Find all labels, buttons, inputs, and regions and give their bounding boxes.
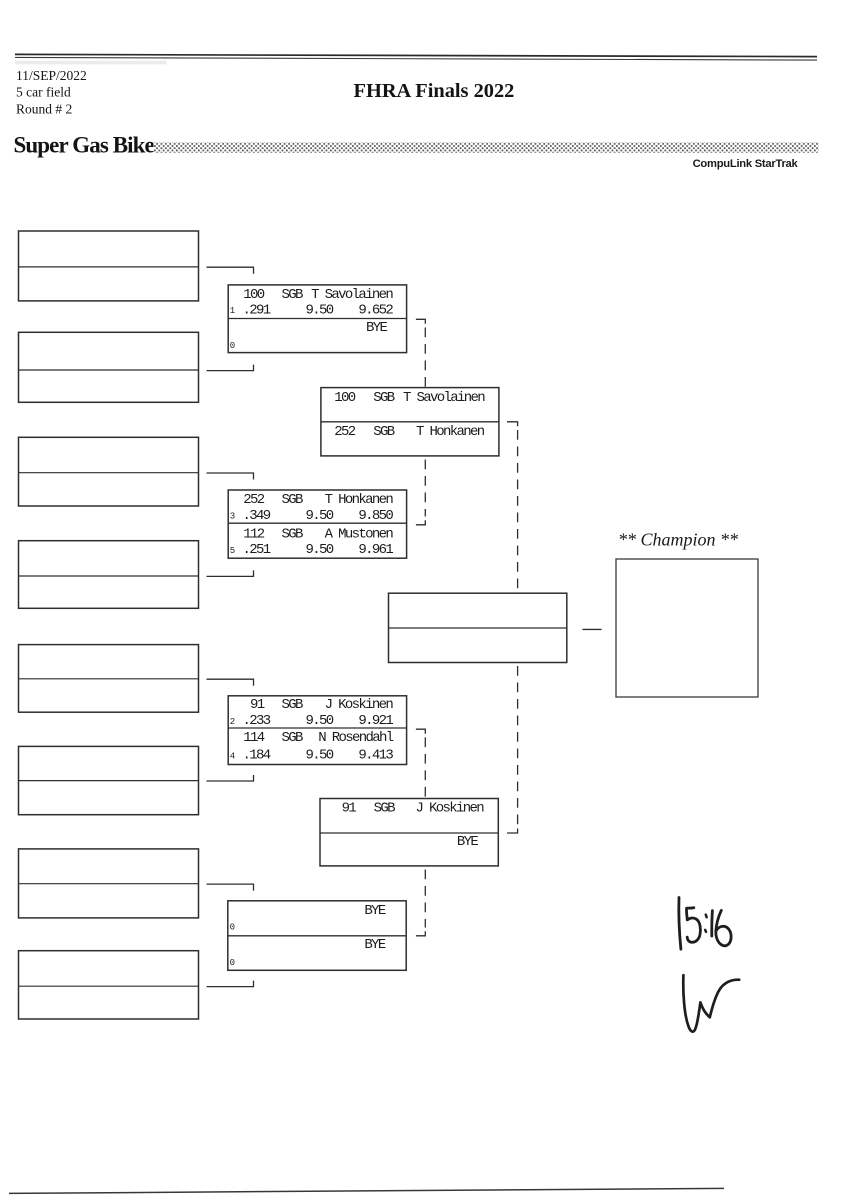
svg-text:5: 5 — [230, 546, 235, 556]
svg-text:SGB: SGB — [282, 287, 304, 303]
svg-text:9.652: 9.652 — [358, 302, 393, 318]
svg-text:SGB: SGB — [282, 492, 304, 508]
svg-text:100: 100 — [334, 390, 356, 406]
svg-text:3: 3 — [230, 512, 235, 522]
svg-text:.291: .291 — [243, 302, 271, 318]
svg-text:0: 0 — [230, 923, 235, 933]
svg-text:100: 100 — [243, 287, 265, 303]
svg-text:SGB: SGB — [374, 801, 396, 817]
svg-text:T Honkanen: T Honkanen — [325, 492, 394, 508]
svg-text:.251: .251 — [243, 542, 271, 558]
svg-text:J Koskinen: J Koskinen — [415, 801, 484, 817]
svg-text:9.850: 9.850 — [358, 508, 393, 524]
svg-text:.233: .233 — [243, 713, 271, 729]
svg-text:FHRA Finals 2022: FHRA Finals 2022 — [354, 80, 515, 102]
svg-text:SGB: SGB — [282, 526, 304, 542]
svg-text:Round # 2: Round # 2 — [16, 102, 72, 117]
svg-text:91: 91 — [342, 801, 357, 817]
svg-text:0: 0 — [230, 341, 235, 351]
svg-text:BYE: BYE — [364, 903, 386, 919]
svg-text:J Koskinen: J Koskinen — [325, 697, 394, 713]
svg-text:BYE: BYE — [364, 937, 386, 953]
svg-text:2: 2 — [230, 717, 235, 727]
svg-text:11/SEP/2022: 11/SEP/2022 — [16, 68, 87, 83]
svg-text:SGB: SGB — [373, 424, 395, 440]
svg-text:252: 252 — [243, 492, 265, 508]
svg-text:T Savolainen: T Savolainen — [403, 390, 485, 406]
svg-text:91: 91 — [250, 697, 265, 713]
svg-text:T Honkanen: T Honkanen — [416, 424, 485, 440]
svg-text:9.961: 9.961 — [358, 542, 393, 558]
svg-text:9.50: 9.50 — [306, 508, 334, 524]
svg-text:CompuLink StarTrak: CompuLink StarTrak — [693, 158, 799, 170]
svg-text:.349: .349 — [243, 508, 271, 524]
svg-text:1: 1 — [230, 306, 235, 316]
svg-text:Super Gas Bike: Super Gas Bike — [14, 133, 155, 158]
svg-text:SGB: SGB — [282, 730, 304, 746]
svg-text:9.50: 9.50 — [306, 542, 334, 558]
svg-text:252: 252 — [334, 424, 356, 440]
svg-text:5 car field: 5 car field — [16, 85, 71, 100]
svg-text:9.50: 9.50 — [306, 302, 334, 318]
svg-text:SGB: SGB — [373, 390, 395, 406]
svg-text:** Champion **: ** Champion ** — [618, 530, 738, 550]
svg-text:N Rosendahl: N Rosendahl — [318, 730, 394, 746]
svg-text:BYE: BYE — [457, 834, 479, 850]
svg-text:4: 4 — [230, 751, 235, 761]
svg-text:SGB: SGB — [282, 697, 304, 713]
svg-text:0: 0 — [230, 958, 235, 968]
svg-text:9.50: 9.50 — [306, 747, 334, 763]
svg-text:BYE: BYE — [366, 320, 388, 336]
svg-text:A Mustonen: A Mustonen — [325, 526, 394, 542]
svg-text:T Savolainen: T Savolainen — [311, 287, 393, 303]
svg-text:112: 112 — [243, 526, 265, 542]
svg-text:9.50: 9.50 — [306, 713, 334, 729]
svg-text:9.413: 9.413 — [358, 747, 393, 763]
svg-text:9.921: 9.921 — [358, 713, 393, 729]
svg-text:.184: .184 — [243, 747, 271, 763]
svg-text:114: 114 — [243, 730, 265, 746]
